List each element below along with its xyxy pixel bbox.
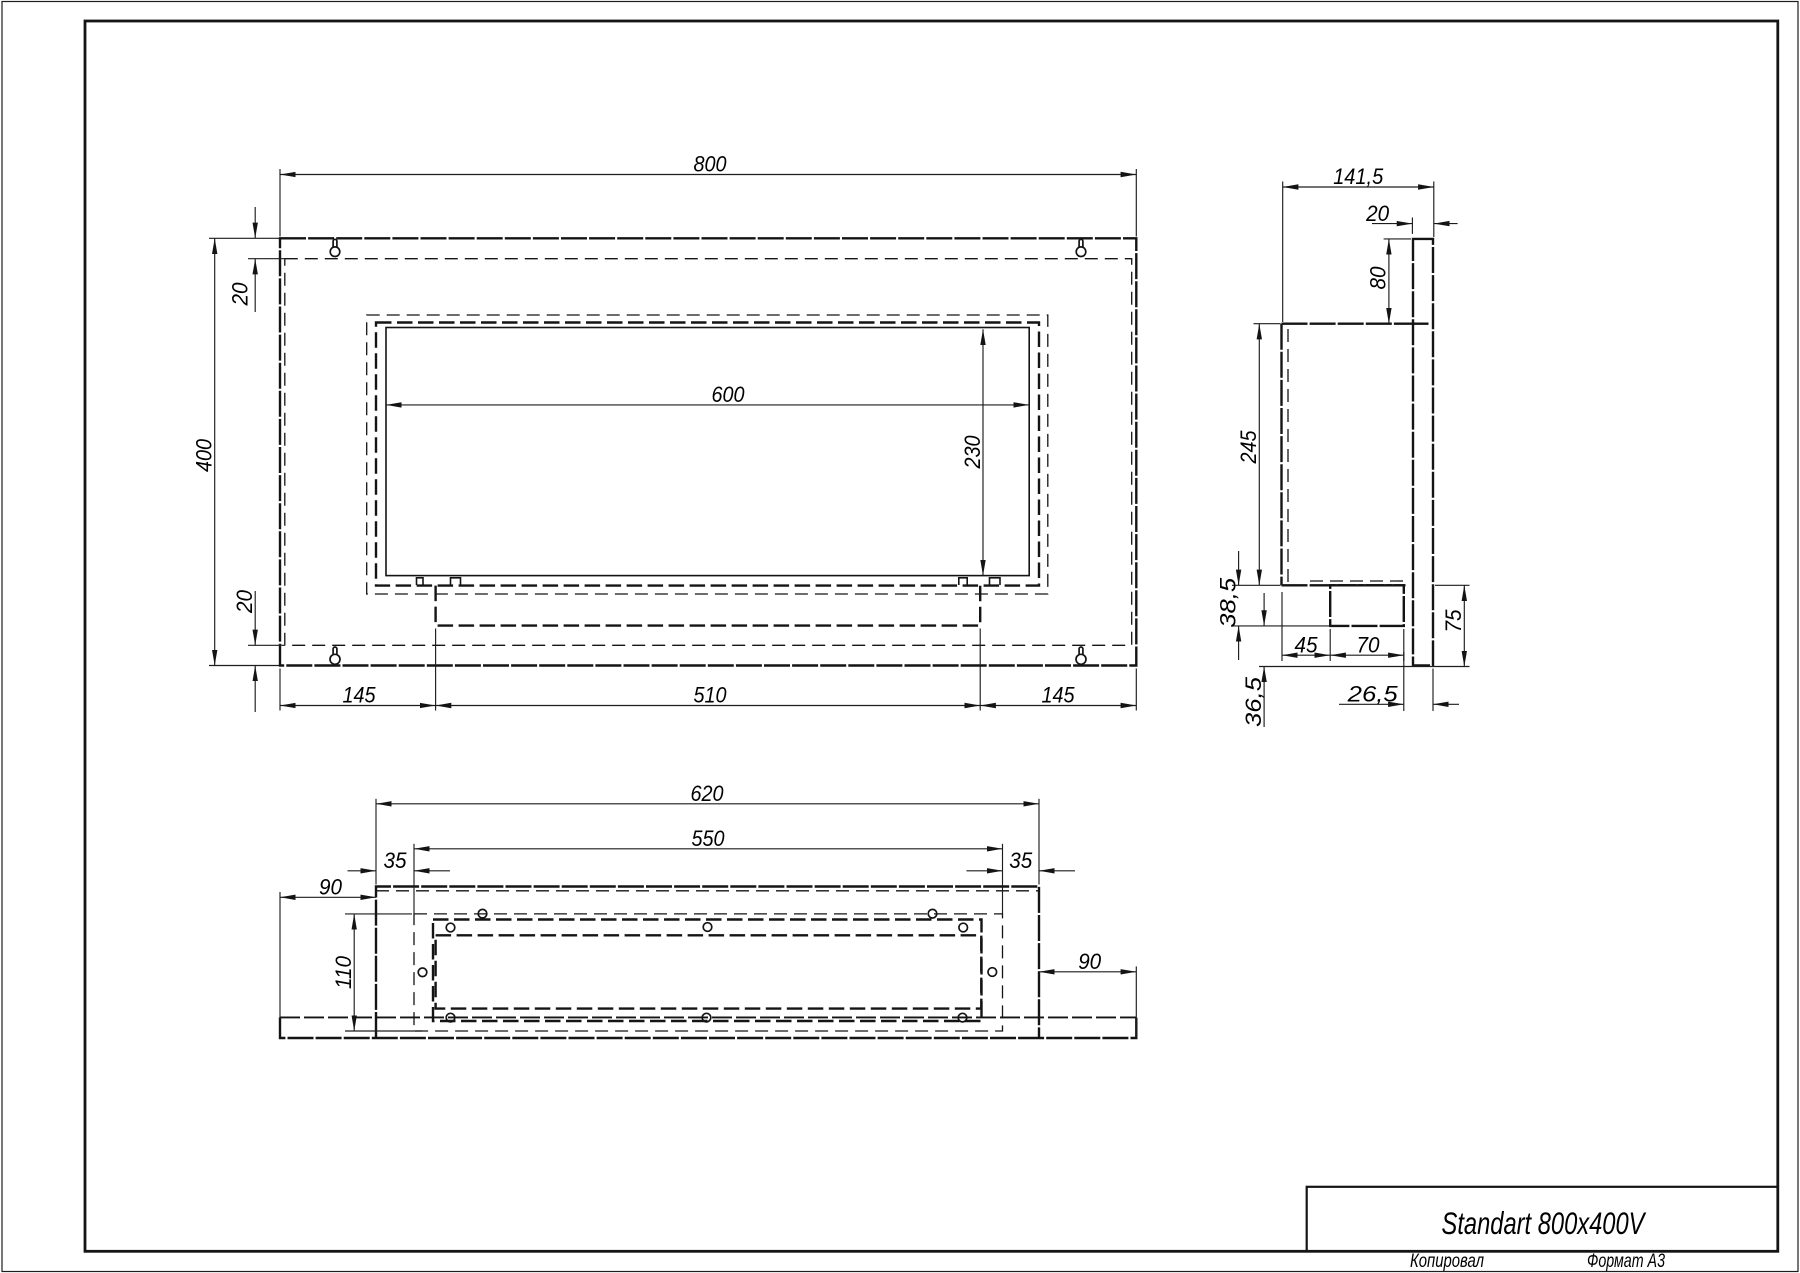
svg-text:90: 90: [319, 875, 343, 900]
svg-text:550: 550: [692, 826, 726, 851]
svg-text:20: 20: [228, 282, 253, 307]
svg-text:Standart 800x400V: Standart 800x400V: [1442, 1205, 1647, 1241]
svg-text:26,5: 26,5: [1347, 682, 1399, 707]
svg-text:620: 620: [691, 781, 725, 806]
svg-text:Формат А3: Формат А3: [1587, 1251, 1665, 1272]
svg-text:141,5: 141,5: [1333, 164, 1384, 189]
svg-text:20: 20: [232, 589, 257, 614]
svg-text:38,5: 38,5: [1215, 577, 1240, 628]
svg-text:245: 245: [1236, 430, 1261, 465]
svg-text:Копировал: Копировал: [1410, 1251, 1484, 1272]
svg-text:510: 510: [694, 683, 728, 708]
svg-text:70: 70: [1357, 632, 1381, 657]
svg-text:145: 145: [1042, 683, 1076, 708]
svg-text:800: 800: [694, 152, 728, 177]
svg-text:35: 35: [1009, 848, 1033, 873]
svg-text:45: 45: [1295, 632, 1319, 657]
svg-text:36,5: 36,5: [1241, 676, 1266, 727]
svg-text:20: 20: [1365, 201, 1390, 226]
svg-text:400: 400: [192, 438, 217, 472]
svg-text:35: 35: [384, 848, 408, 873]
svg-text:600: 600: [712, 382, 746, 407]
svg-text:80: 80: [1366, 266, 1391, 290]
svg-text:75: 75: [1441, 609, 1466, 633]
svg-text:145: 145: [343, 683, 377, 708]
svg-text:90: 90: [1078, 949, 1102, 974]
svg-text:110: 110: [331, 955, 356, 989]
svg-text:230: 230: [960, 435, 985, 470]
